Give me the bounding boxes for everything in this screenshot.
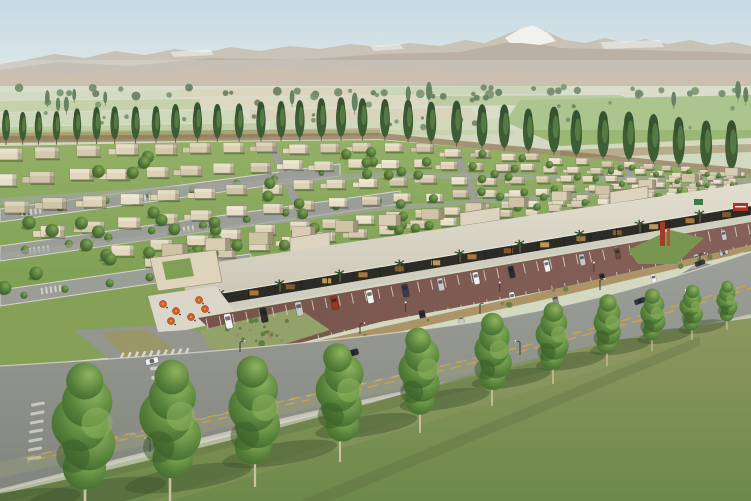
service-building-shade bbox=[738, 168, 742, 176]
yard-tree bbox=[80, 239, 93, 252]
house bbox=[601, 161, 614, 169]
yard-tree bbox=[608, 168, 614, 174]
yard-tree bbox=[104, 253, 117, 266]
aerial-rendering: Aerial architectural rendering of a dese… bbox=[0, 0, 751, 501]
yard-tree bbox=[22, 216, 36, 230]
house-wing bbox=[435, 165, 441, 169]
shrub bbox=[254, 318, 259, 323]
yard-tree bbox=[505, 173, 513, 181]
house bbox=[453, 190, 470, 200]
house-shadow bbox=[191, 153, 212, 155]
storefront-window bbox=[686, 218, 695, 223]
house-shadow bbox=[446, 157, 462, 159]
yard-tree bbox=[478, 175, 487, 184]
house-shadow bbox=[43, 209, 67, 211]
shrub bbox=[249, 329, 252, 332]
house-shadow bbox=[363, 205, 381, 207]
yard-tree bbox=[592, 175, 599, 182]
house-roof-light bbox=[444, 207, 460, 210]
yard-tree bbox=[143, 247, 155, 259]
house-roof-light bbox=[118, 217, 141, 221]
poplar-highlight bbox=[455, 109, 460, 131]
house-shadow bbox=[42, 237, 66, 239]
tree-canopy bbox=[721, 281, 733, 293]
yard-tree bbox=[533, 203, 541, 211]
yard-tree bbox=[384, 170, 394, 180]
poplar-highlight bbox=[299, 107, 304, 126]
canopy-shade bbox=[318, 403, 344, 429]
house-roof-light bbox=[590, 168, 602, 170]
yard-tree bbox=[45, 224, 58, 237]
house-shadow bbox=[264, 214, 284, 216]
house bbox=[576, 158, 590, 166]
house-roof-light bbox=[441, 162, 457, 165]
house-wing bbox=[572, 198, 577, 201]
house-roof-light bbox=[688, 188, 698, 190]
house-shadow bbox=[227, 195, 248, 197]
house-roof-light bbox=[662, 166, 672, 168]
canopy-highlight bbox=[418, 358, 439, 379]
poplar-highlight bbox=[76, 114, 80, 130]
house-shadow bbox=[350, 238, 369, 240]
house-roof-light bbox=[155, 144, 177, 148]
verge-shrub bbox=[501, 302, 504, 305]
house-shadow bbox=[117, 155, 140, 157]
house-roof-light bbox=[213, 163, 234, 167]
house-roof-light bbox=[605, 176, 617, 178]
house-roof-light bbox=[116, 144, 139, 148]
house bbox=[605, 176, 618, 184]
streetlight-lamp bbox=[244, 340, 246, 342]
house-roof-light bbox=[666, 192, 676, 194]
storefront-window bbox=[468, 254, 477, 259]
house-roof-light bbox=[416, 144, 433, 147]
house-shadow bbox=[250, 251, 270, 253]
house bbox=[501, 154, 517, 163]
house-roof-light bbox=[501, 154, 516, 157]
yard-tree bbox=[618, 165, 624, 171]
shrub bbox=[285, 319, 289, 323]
house-roof-light bbox=[283, 160, 303, 164]
poplar-highlight bbox=[407, 107, 412, 127]
house-roof-light bbox=[453, 190, 469, 193]
house-roof-light bbox=[699, 170, 708, 172]
house-roof-light bbox=[0, 148, 22, 152]
service-building-shade bbox=[652, 180, 656, 189]
house-roof-light bbox=[496, 164, 511, 167]
house-roof-light bbox=[289, 144, 309, 148]
shrub bbox=[270, 333, 273, 336]
yard-tree bbox=[477, 188, 486, 197]
house-wing bbox=[586, 170, 590, 173]
house bbox=[635, 169, 647, 176]
tree-canopy bbox=[66, 362, 103, 399]
poplar-highlight bbox=[56, 117, 60, 132]
canopy-highlight bbox=[691, 301, 702, 312]
yard-tree bbox=[716, 173, 721, 178]
canopy-highlight bbox=[337, 378, 361, 402]
house-roof-light bbox=[326, 180, 345, 183]
house-shadow bbox=[224, 153, 245, 155]
house-roof-light bbox=[191, 210, 212, 214]
house bbox=[77, 145, 101, 158]
umbrella-top bbox=[204, 308, 206, 310]
house-shadow bbox=[526, 160, 540, 162]
yard-tree bbox=[422, 157, 431, 166]
house-wing bbox=[277, 164, 284, 169]
house-roof-light bbox=[187, 235, 208, 239]
plaza-table bbox=[194, 320, 196, 322]
yard-tree bbox=[468, 162, 477, 171]
tree-canopy bbox=[237, 356, 269, 388]
house bbox=[356, 215, 376, 226]
canopy-highlight bbox=[252, 394, 279, 421]
tree-canopy bbox=[645, 289, 660, 304]
house-roof-light bbox=[451, 177, 467, 180]
house bbox=[118, 217, 142, 229]
poplar-highlight bbox=[575, 118, 581, 141]
house-shadow bbox=[0, 160, 23, 162]
streetlight-lamp bbox=[604, 278, 606, 280]
yard-tree bbox=[92, 165, 105, 178]
yard-tree bbox=[366, 147, 376, 157]
poplar-highlight bbox=[730, 129, 736, 154]
house-shadow bbox=[284, 170, 304, 172]
house-roof-light bbox=[385, 143, 403, 146]
house-roof-light bbox=[194, 189, 215, 193]
canopy-shade bbox=[718, 305, 729, 316]
storefront-window bbox=[286, 284, 295, 289]
house-roof-light bbox=[70, 169, 93, 173]
house-shadow bbox=[357, 224, 376, 226]
shrub bbox=[236, 334, 240, 338]
house-roof-light bbox=[30, 172, 54, 176]
house-shadow bbox=[0, 186, 18, 188]
storefront-window bbox=[395, 266, 404, 271]
house-roof-light bbox=[42, 198, 66, 202]
house-wing bbox=[187, 193, 195, 198]
house-roof-light bbox=[226, 185, 247, 189]
house-wing bbox=[308, 165, 315, 170]
poplar-highlight bbox=[340, 105, 345, 125]
house-roof-light bbox=[111, 245, 134, 249]
yard-tree bbox=[677, 188, 682, 193]
yard-tree bbox=[424, 221, 433, 230]
house-shadow bbox=[511, 184, 526, 186]
house-wing bbox=[556, 178, 561, 181]
shrub bbox=[280, 339, 283, 342]
plaza-table bbox=[166, 307, 168, 309]
house-roof-light bbox=[256, 142, 276, 146]
poplar-highlight bbox=[627, 120, 633, 145]
storefront-window bbox=[322, 278, 331, 283]
yard-tree bbox=[705, 172, 710, 177]
service-building-shade bbox=[353, 221, 358, 233]
house-roof-light bbox=[77, 145, 100, 149]
house bbox=[70, 169, 94, 182]
house-wing bbox=[35, 203, 44, 209]
verge-shrub bbox=[707, 254, 713, 260]
house-roof-light bbox=[251, 163, 271, 167]
storefront-window bbox=[250, 290, 259, 295]
poplar-highlight bbox=[174, 110, 178, 128]
plaza-table bbox=[208, 312, 210, 314]
storefront-window bbox=[649, 224, 658, 229]
house-wing bbox=[411, 148, 417, 152]
house bbox=[147, 167, 170, 179]
verge-shrub bbox=[552, 289, 555, 292]
yard-tree bbox=[411, 224, 421, 234]
shrub bbox=[239, 327, 242, 330]
house-wing bbox=[353, 182, 360, 187]
house-roof-light bbox=[709, 172, 718, 174]
yard-tree bbox=[429, 194, 438, 203]
house-roof-light bbox=[520, 164, 534, 167]
canopy-shade bbox=[594, 330, 610, 346]
umbrella-top bbox=[190, 316, 192, 318]
house bbox=[496, 164, 512, 173]
yard-tree bbox=[262, 191, 273, 202]
house-shadow bbox=[386, 152, 404, 154]
house-shadow bbox=[561, 182, 574, 184]
house-roof-light bbox=[35, 147, 59, 151]
poplar-highlight bbox=[135, 112, 139, 129]
house-roof-light bbox=[320, 144, 339, 147]
house-shadow bbox=[181, 176, 202, 178]
umbrella-top bbox=[198, 299, 200, 301]
poplar-highlight bbox=[602, 120, 608, 144]
verge-shrub bbox=[427, 319, 430, 322]
house-roof-light bbox=[681, 167, 691, 169]
house-roof-light bbox=[263, 204, 283, 208]
house-roof-light bbox=[0, 174, 17, 178]
house-roof-light bbox=[381, 160, 399, 163]
house bbox=[451, 177, 468, 187]
house-roof-light bbox=[410, 220, 427, 223]
house-shadow bbox=[483, 197, 498, 199]
house-shadow bbox=[521, 171, 535, 173]
poplar-highlight bbox=[384, 106, 389, 126]
house-shadow bbox=[108, 180, 131, 182]
house-roof-light bbox=[598, 199, 610, 201]
house-roof-light bbox=[643, 164, 654, 166]
house-roof-light bbox=[4, 201, 29, 205]
streetlight-lamp bbox=[704, 252, 706, 254]
yard-tree bbox=[619, 181, 625, 187]
house-roof-light bbox=[525, 153, 539, 156]
service-building-shade bbox=[695, 174, 699, 182]
house-shadow bbox=[656, 188, 667, 190]
house-shadow bbox=[5, 213, 30, 215]
shrub bbox=[255, 340, 257, 342]
house-shadow bbox=[360, 188, 379, 190]
yard-tree bbox=[279, 240, 290, 251]
poplar-highlight bbox=[705, 129, 711, 153]
yard-tree bbox=[582, 199, 589, 206]
house-roof-light bbox=[158, 190, 180, 194]
poplar-highlight bbox=[677, 126, 683, 150]
house-roof-light bbox=[601, 161, 613, 163]
yard-tree bbox=[540, 193, 548, 201]
house-roof-light bbox=[624, 162, 635, 164]
canopy-shade bbox=[475, 359, 495, 379]
poplar-highlight bbox=[481, 112, 486, 133]
median-tree bbox=[61, 285, 68, 292]
yard-tree bbox=[297, 208, 308, 219]
house-roof-light bbox=[220, 230, 241, 234]
poplar-highlight bbox=[260, 108, 265, 127]
house bbox=[0, 174, 18, 188]
house-shadow bbox=[452, 185, 468, 187]
house-shadow bbox=[421, 183, 438, 185]
house-roof-light bbox=[255, 225, 275, 229]
yard-tree bbox=[168, 223, 180, 235]
tree-canopy bbox=[686, 285, 699, 298]
canopy-highlight bbox=[726, 295, 736, 305]
yard-tree bbox=[92, 225, 105, 238]
yard-tree bbox=[294, 198, 305, 209]
house-roof-light bbox=[576, 195, 589, 197]
yard-tree bbox=[362, 169, 372, 179]
house-roof-light bbox=[150, 240, 172, 244]
house-roof-light bbox=[655, 182, 666, 184]
verge-shrub bbox=[563, 286, 568, 291]
verge-shrub bbox=[678, 263, 684, 269]
house-roof-light bbox=[190, 143, 211, 147]
house-shadow bbox=[84, 207, 107, 209]
house bbox=[444, 207, 461, 217]
canopy-shade bbox=[538, 343, 556, 361]
umbrella-top bbox=[170, 320, 172, 322]
house-shadow bbox=[544, 173, 558, 175]
house-shadow bbox=[583, 182, 596, 184]
canopy-shade bbox=[143, 431, 174, 462]
house bbox=[525, 153, 540, 162]
service-building-shade bbox=[439, 209, 444, 220]
house-roof-light bbox=[83, 196, 106, 200]
house-wing bbox=[320, 183, 327, 188]
tree-canopy bbox=[323, 343, 352, 372]
storefront-window bbox=[722, 212, 731, 217]
plaza-table bbox=[174, 324, 176, 326]
house bbox=[385, 143, 404, 153]
yard-tree bbox=[520, 188, 528, 196]
poplar-highlight bbox=[216, 110, 220, 128]
house-wing bbox=[33, 231, 42, 237]
plaza-table bbox=[179, 314, 181, 316]
house-shadow bbox=[71, 180, 94, 182]
tree-canopy bbox=[155, 360, 190, 395]
canopy-shade bbox=[231, 422, 260, 451]
house-shadow bbox=[31, 183, 55, 185]
house-shadow bbox=[497, 171, 512, 173]
house-roof-light bbox=[294, 180, 314, 183]
yard-tree bbox=[546, 161, 553, 168]
house-shadow bbox=[417, 152, 434, 154]
poplar-highlight bbox=[652, 123, 658, 147]
yard-tree bbox=[675, 179, 680, 184]
umbrella-top bbox=[162, 303, 164, 305]
house-shadow bbox=[148, 178, 170, 180]
yard-tree bbox=[511, 165, 519, 173]
house bbox=[121, 194, 144, 206]
house-wing bbox=[76, 201, 84, 207]
house-shadow bbox=[390, 186, 408, 188]
house-shadow bbox=[636, 174, 647, 176]
house-shadow bbox=[738, 176, 746, 178]
house-shadow bbox=[483, 185, 498, 187]
entry-sculpture bbox=[667, 228, 670, 246]
house-shadow bbox=[606, 182, 618, 184]
shrub bbox=[249, 318, 254, 323]
house-roof-light bbox=[713, 180, 722, 182]
house-roof-light bbox=[728, 179, 737, 181]
house-shadow bbox=[227, 216, 248, 218]
house-roof-light bbox=[226, 206, 247, 210]
house-roof-light bbox=[560, 175, 573, 177]
yard-tree bbox=[264, 178, 275, 189]
poplar-highlight bbox=[361, 105, 366, 125]
house-wing bbox=[250, 146, 257, 151]
house bbox=[4, 201, 30, 215]
yard-tree bbox=[126, 167, 138, 179]
tree-canopy bbox=[405, 328, 431, 354]
yard-tree bbox=[341, 149, 351, 159]
house-shadow bbox=[591, 174, 603, 176]
house-roof-light bbox=[549, 205, 562, 207]
house-shadow bbox=[577, 165, 590, 167]
house-roof-light bbox=[393, 193, 411, 196]
yard-tree bbox=[209, 217, 221, 229]
canopy-highlight bbox=[651, 307, 664, 320]
poplar-highlight bbox=[22, 117, 26, 132]
poplar-highlight bbox=[238, 110, 242, 128]
yard-tree bbox=[361, 158, 371, 168]
house-shadow bbox=[663, 171, 673, 173]
house-shadow bbox=[315, 171, 334, 173]
yard-tree bbox=[413, 170, 423, 180]
poplar-highlight bbox=[320, 105, 325, 125]
yard-tree bbox=[518, 154, 526, 162]
house-shadow bbox=[36, 159, 60, 161]
house-shadow bbox=[537, 183, 551, 185]
house-roof-light bbox=[362, 196, 380, 199]
house-wing bbox=[183, 147, 191, 152]
house-shadow bbox=[122, 205, 144, 207]
house-roof-light bbox=[576, 158, 589, 160]
lot-light bbox=[499, 282, 501, 284]
house-shadow bbox=[502, 161, 517, 163]
yard-tree bbox=[75, 217, 88, 230]
house-shadow bbox=[195, 199, 216, 201]
canopy-highlight bbox=[167, 402, 196, 431]
house-roof-light bbox=[329, 198, 348, 201]
shrub bbox=[263, 325, 266, 328]
canopy-shade bbox=[682, 312, 694, 324]
house-roof-light bbox=[536, 176, 550, 178]
tree-canopy bbox=[544, 302, 564, 322]
canopy-highlight bbox=[551, 326, 568, 343]
streetlight-arm bbox=[480, 303, 484, 304]
median-tree bbox=[148, 227, 156, 235]
poplar-highlight bbox=[503, 113, 509, 135]
canopy-highlight bbox=[81, 407, 112, 438]
median-tree bbox=[106, 279, 114, 287]
house-shadow bbox=[327, 189, 346, 191]
yard-tree bbox=[231, 240, 242, 251]
service-building-shade bbox=[396, 215, 401, 226]
house-roof-light bbox=[724, 181, 733, 183]
